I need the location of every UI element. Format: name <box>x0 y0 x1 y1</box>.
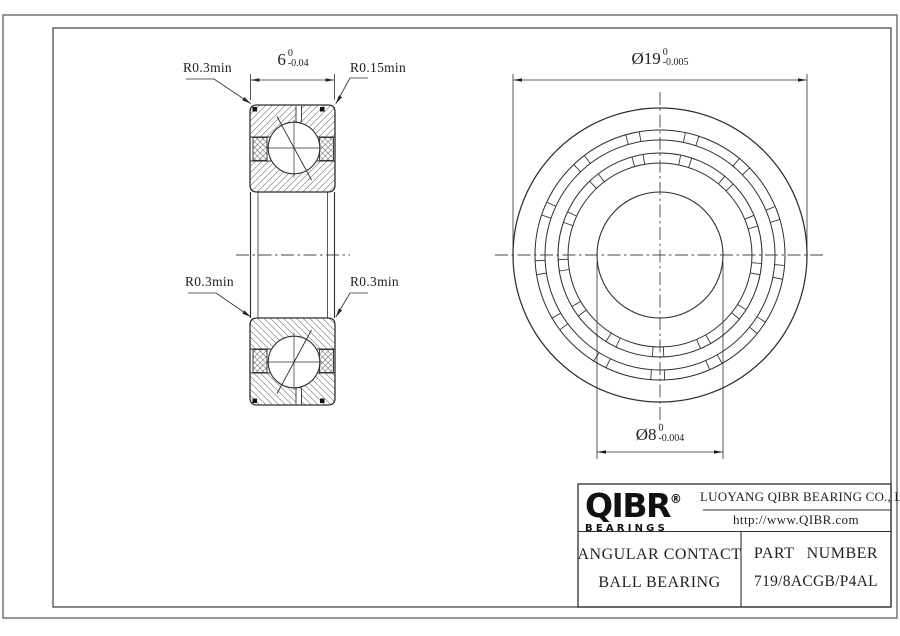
company-website: http://www.QIBR.com <box>700 512 892 528</box>
od-dim-value: Ø19 <box>631 50 660 68</box>
seal-dot-right <box>320 107 325 112</box>
bearing-half-section-mirror <box>250 318 335 405</box>
width-dimension <box>251 74 335 100</box>
bore-dimension-text: Ø8 0 -0.004 <box>615 426 705 444</box>
drawing-sheet: R0.3min R0.15min R0.3min R0.3min 6 0 -0.… <box>0 0 900 636</box>
logo-text: QIBR <box>585 486 670 525</box>
od-dimension-text: Ø19 0 -0.005 <box>615 50 705 68</box>
width-dimension-text: 6 0 -0.04 <box>258 51 328 69</box>
width-dim-tol-lower: -0.04 <box>288 59 309 69</box>
product-type-line1: ANGULAR CONTACT <box>578 541 742 569</box>
cage-section-left <box>253 138 267 161</box>
product-type-cell: ANGULAR CONTACT BALL BEARING <box>579 533 740 605</box>
part-number-value: 719/8ACGB/P4AL <box>754 567 878 597</box>
front-view <box>495 74 825 459</box>
product-type-line2: BALL BEARING <box>598 569 720 597</box>
radius-label-top-left: R0.3min <box>183 60 232 76</box>
part-number-label: PART NUMBER <box>754 541 878 567</box>
ring-face-groove <box>296 106 302 123</box>
company-logo: QIBR® BEARINGS <box>585 483 682 534</box>
radius-label-mid-right: R0.3min <box>350 274 399 290</box>
seal-dot-left <box>253 107 258 112</box>
radius-label-mid-left: R0.3min <box>185 274 234 290</box>
front-view-centerlines <box>495 92 825 425</box>
width-dim-value: 6 <box>277 51 286 69</box>
bearing-half-section <box>250 105 335 192</box>
bore-dim-tol-lower: -0.004 <box>658 434 684 444</box>
part-number-cell: PART NUMBER 719/8ACGB/P4AL <box>742 533 890 605</box>
radius-label-top-right: R0.15min <box>350 60 406 76</box>
registered-mark: ® <box>670 492 682 506</box>
bore-dim-value: Ø8 <box>636 426 657 444</box>
company-name: LUOYANG QIBR BEARING CO., LTD <box>700 489 892 505</box>
od-dim-tol-lower: -0.005 <box>663 58 689 68</box>
cage-section-right <box>320 138 334 161</box>
section-view <box>186 74 368 405</box>
